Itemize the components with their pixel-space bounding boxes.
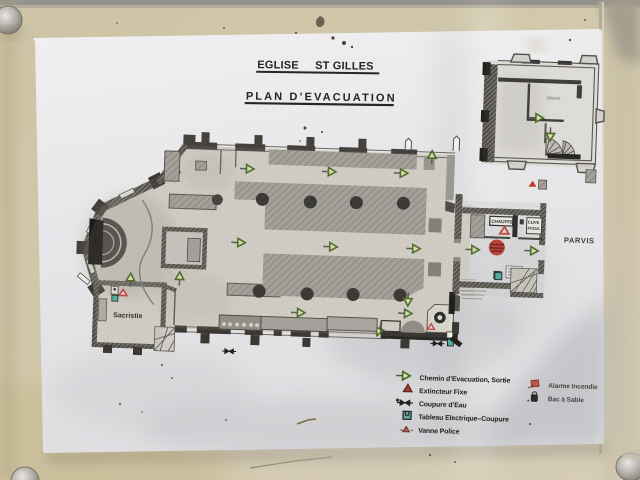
svg-text:EGLISE ST GILLES: EGLISE ST GILLES	[257, 59, 374, 73]
svg-text:Extincteur Fixe: Extincteur Fixe	[419, 388, 467, 396]
svg-text:Coupure d’Eau: Coupure d’Eau	[419, 401, 467, 409]
svg-text:Vanne Police: Vanne Police	[418, 428, 460, 436]
svg-text:PARVIS: PARVIS	[564, 236, 595, 246]
svg-text:Bac à Sable: Bac à Sable	[548, 396, 585, 404]
svg-text:Alarme Incendie: Alarme Incendie	[548, 383, 598, 391]
